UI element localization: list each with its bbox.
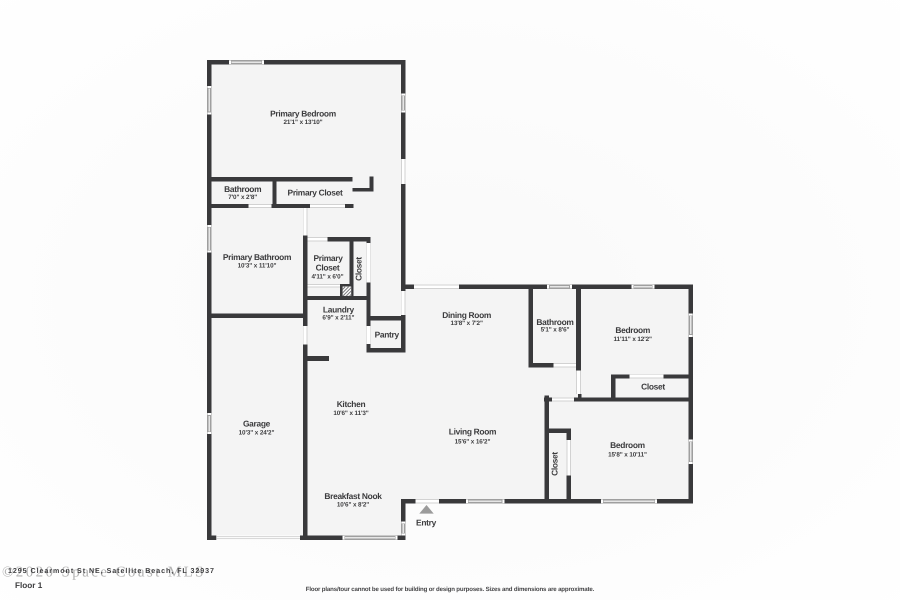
- svg-text:Closet: Closet: [641, 382, 665, 392]
- svg-text:Bathroom: Bathroom: [224, 184, 261, 194]
- svg-text:Closet: Closet: [550, 452, 560, 476]
- svg-text:7'0" x 2'8": 7'0" x 2'8": [228, 194, 257, 201]
- svg-text:Dining Room: Dining Room: [442, 310, 491, 320]
- svg-text:4'11" x 6'0": 4'11" x 6'0": [312, 274, 344, 281]
- svg-text:5'1" x 8'6": 5'1" x 8'6": [541, 326, 570, 333]
- svg-text:13'8" x 7'2": 13'8" x 7'2": [451, 320, 483, 327]
- svg-text:Breakfast Nook: Breakfast Nook: [324, 491, 382, 501]
- svg-text:10'3" x 24'2": 10'3" x 24'2": [239, 430, 275, 437]
- svg-text:11'11" x 12'2": 11'11" x 12'2": [614, 336, 653, 343]
- svg-text:10'6" x 8'2": 10'6" x 8'2": [337, 501, 369, 508]
- svg-text:Primary Closet: Primary Closet: [288, 188, 343, 198]
- svg-text:Bedroom: Bedroom: [615, 325, 650, 335]
- svg-text:Closet: Closet: [316, 263, 340, 273]
- svg-text:Floor plans/tour cannot be use: Floor plans/tour cannot be used for buil…: [306, 586, 595, 593]
- svg-text:1295 Clearmont St NE, Satellit: 1295 Clearmont St NE, Satellite Beach, F…: [8, 567, 215, 575]
- svg-text:Closet: Closet: [354, 257, 364, 281]
- svg-text:15'6" x 16'2": 15'6" x 16'2": [455, 438, 491, 445]
- svg-text:10'6" x 11'3": 10'6" x 11'3": [333, 410, 368, 417]
- svg-text:Primary: Primary: [313, 253, 343, 263]
- svg-text:Kitchen: Kitchen: [337, 399, 366, 409]
- svg-text:Pantry: Pantry: [375, 329, 400, 339]
- svg-text:Primary Bathroom: Primary Bathroom: [223, 252, 291, 262]
- svg-text:Primary Bedroom: Primary Bedroom: [270, 109, 336, 119]
- svg-text:15'8" x 10'11": 15'8" x 10'11": [608, 451, 647, 458]
- svg-text:Entry: Entry: [416, 518, 437, 528]
- svg-text:Bathroom: Bathroom: [536, 317, 573, 327]
- svg-text:Garage: Garage: [243, 419, 271, 429]
- svg-text:Laundry: Laundry: [323, 305, 355, 315]
- svg-text:Living Room: Living Room: [449, 427, 496, 437]
- svg-text:Floor 1: Floor 1: [15, 581, 43, 590]
- svg-text:21'1" x 13'10": 21'1" x 13'10": [283, 119, 322, 126]
- svg-text:Bedroom: Bedroom: [610, 440, 645, 450]
- svg-text:10'3" x 11'10": 10'3" x 11'10": [238, 262, 277, 269]
- svg-text:6'9" x 2'11": 6'9" x 2'11": [322, 315, 354, 322]
